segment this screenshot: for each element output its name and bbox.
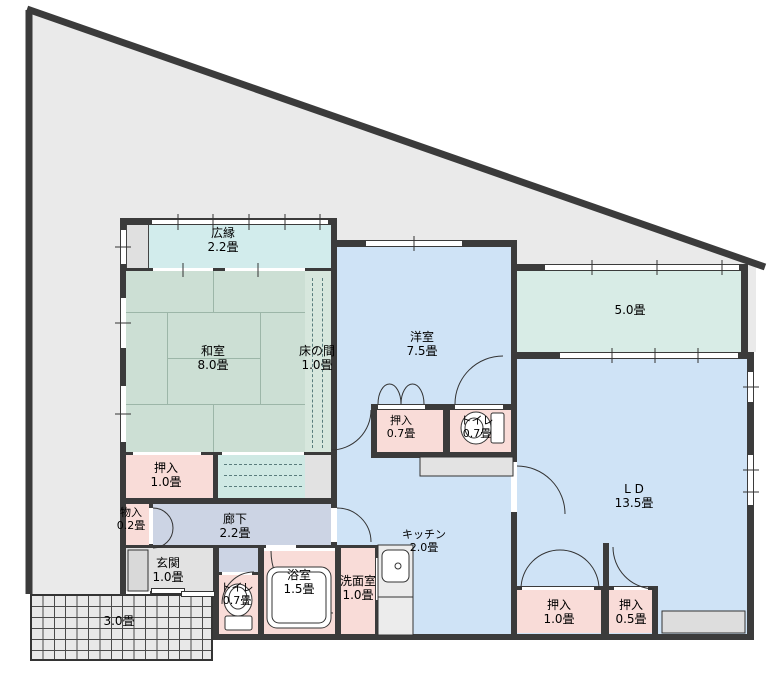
- symbols-layer: [0, 0, 767, 674]
- door-arc: [401, 384, 424, 404]
- room-label-washitsu: 和室8.0畳: [197, 344, 228, 372]
- room-label-yokushitsu: 浴室1.5畳: [283, 568, 314, 596]
- room-label-5jo: 5.0畳: [614, 303, 645, 317]
- room-label-oshiire-washitsu: 押入1.0畳: [150, 461, 181, 489]
- floor-plan: 広縁2.2畳 和室8.0畳 床の間1.0畳 洋室7.5畳 5.0畳 L D13.…: [0, 0, 767, 674]
- kitchen-sink-icon: [378, 545, 413, 635]
- room-label-living-dining: L D13.5畳: [615, 482, 654, 510]
- room-label-kitchen: キッチン2.0畳: [402, 528, 446, 554]
- room-label-toilet-lower: トイレ0.7畳: [221, 581, 254, 607]
- room-label-youshitsu: 洋室7.5畳: [406, 330, 437, 358]
- room-label-genkan: 玄関1.0畳: [152, 556, 183, 584]
- room-label-terrace: 3.0畳: [103, 614, 134, 628]
- room-label-oshiire-youshitsu: 押入0.7畳: [387, 414, 416, 440]
- room-label-rouka: 廊下2.2畳: [219, 512, 250, 540]
- room-label-oshiire-ld-small: 押入0.5畳: [615, 598, 646, 626]
- door-arc: [153, 508, 173, 528]
- door-arc: [517, 466, 565, 514]
- door-arc: [455, 356, 503, 404]
- room-label-oshiire-ld-large: 押入1.0畳: [543, 598, 574, 626]
- room-label-senmenshitsu: 洗面室1.0畳: [340, 574, 376, 602]
- door-arc: [378, 384, 401, 404]
- room-label-tokonoma: 床の間1.0畳: [299, 344, 335, 372]
- door-arc: [613, 547, 654, 589]
- door-arc: [560, 550, 599, 589]
- door-arc: [331, 410, 371, 450]
- room-label-hiroen: 広縁2.2畳: [207, 226, 238, 254]
- door-arc: [521, 550, 560, 589]
- room-label-toilet-upper: トイレ0.7畳: [461, 414, 494, 440]
- door-arc: [153, 528, 173, 548]
- door-arc: [337, 508, 371, 542]
- room-label-monoire: 物入0.2畳: [117, 506, 146, 532]
